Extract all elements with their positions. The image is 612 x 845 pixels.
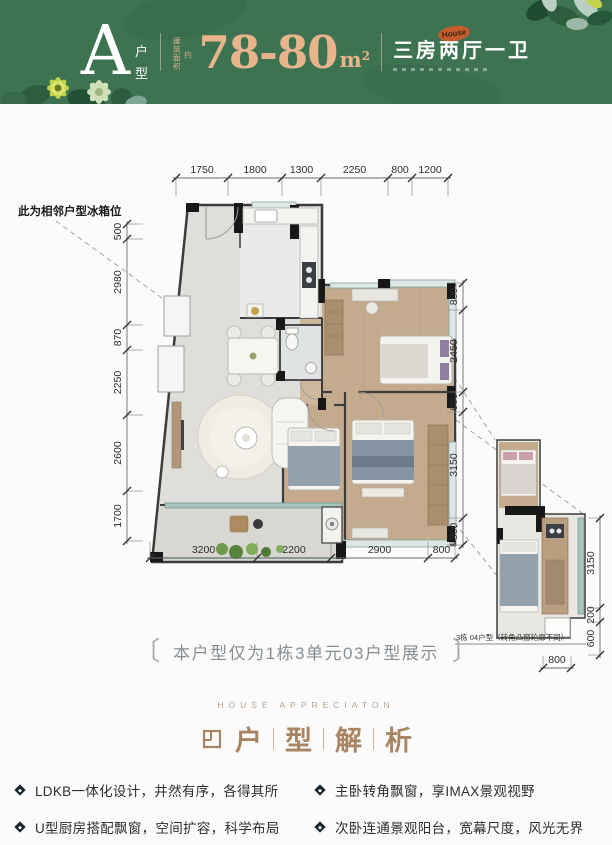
dimension-label: 200 <box>585 606 597 624</box>
section-title-char-1: 户 <box>235 719 262 758</box>
title-divider <box>323 728 324 750</box>
diamond-bullet-icon <box>14 821 25 832</box>
header-banner: A 户 型 建筑面积 约 78-80 m 2 三房两厅一卫 House <box>0 0 612 104</box>
feature-item-balcony: 次卧连通景观阳台，宽幕尺度，风光无界 <box>316 817 600 837</box>
dimension-label: 1300 <box>290 164 314 176</box>
area-exponent: 2 <box>362 49 370 63</box>
feature-item-ldkb: LDKB一体化设计，井然有序，各得其所 <box>16 780 316 800</box>
inset-variant-plan: 3栋 04户型（转角凸窗轮廓不同） <box>455 440 586 644</box>
exterior-bay-2 <box>158 346 184 392</box>
feature-text: 次卧连通景观阳台，宽幕尺度，风光无界 <box>335 817 583 837</box>
feature-text: U型厨房搭配飘窗，空间扩容，科学布局 <box>35 817 280 837</box>
dimension-label: 870 <box>112 329 124 347</box>
house-stamp-text: House <box>441 27 466 39</box>
diamond-bullet-icon <box>14 784 25 795</box>
feature-item-master-window: 主卧转角飘窗，享IMAX景观视野 <box>316 780 600 800</box>
feature-text: LDKB一体化设计，井然有序，各得其所 <box>35 780 278 800</box>
dimension-label: 2450 <box>448 339 460 363</box>
dimension-label: 2980 <box>112 270 124 294</box>
dimension-label: 1700 <box>112 504 124 528</box>
exterior-bay-1 <box>164 296 190 336</box>
dimension-label: 3150 <box>585 551 597 575</box>
fridge-leader-line <box>56 221 162 298</box>
dimension-label: 800 <box>448 523 460 541</box>
feature-text: 主卧转角飘窗，享IMAX景观视野 <box>335 780 535 800</box>
dimension-label: 600 <box>448 393 460 411</box>
area-prefix-text: 建筑面积 <box>172 37 180 71</box>
laundry-closet <box>322 507 342 543</box>
header-divider-2 <box>381 33 382 71</box>
fridge-note-label: 此为相邻户型冰箱位 <box>18 204 122 218</box>
area-prefix: 建筑面积 约 <box>172 37 192 71</box>
note-bracket-right: 〕 <box>452 638 478 664</box>
toilet-tank <box>286 328 298 334</box>
toilet <box>286 334 298 350</box>
area-prefix-approx: 约 <box>183 51 191 71</box>
section-title-char-4: 析 <box>385 719 412 758</box>
dimension-label: 2250 <box>112 371 124 395</box>
dimension-label: 2600 <box>112 441 124 465</box>
diamond-bullet-icon <box>314 821 325 832</box>
header-divider-1 <box>160 33 161 71</box>
unit-label-char-2: 型 <box>135 63 149 82</box>
title-divider <box>273 728 274 750</box>
dimension-label: 800 <box>391 164 409 176</box>
dimension-label: 500 <box>112 223 124 241</box>
section-eyebrow: HOUSE APPRECIATON <box>0 700 612 710</box>
title-divider <box>373 728 374 750</box>
display-note-text: 本户型仅为1栋3单元03户型展示 <box>173 639 439 664</box>
bathroom-sink <box>306 363 317 374</box>
diamond-bullet-icon <box>314 784 325 795</box>
unit-letter: A <box>81 20 130 85</box>
section-title-char-3: 解 <box>335 719 362 758</box>
dimension-label: 800 <box>433 544 451 556</box>
dimension-label: 2250 <box>343 164 367 176</box>
unit-type-label: 户 型 <box>135 41 149 82</box>
dimension-label: 800 <box>448 288 460 306</box>
area-value: 78-80 <box>199 30 338 75</box>
floor-plan: 此为相邻户型冰箱位 <box>0 140 612 700</box>
feature-list: LDKB一体化设计，井然有序，各得其所 主卧转角飘窗，享IMAX景观视野 U型厨… <box>16 780 600 837</box>
main-unit-plan <box>150 202 456 562</box>
dimension-label: 3200 <box>192 544 216 556</box>
dimension-label: 2900 <box>368 544 392 556</box>
layout-subtitle-ticks <box>393 68 489 71</box>
unit-label-char-1: 户 <box>135 41 149 60</box>
dimension-label: 2200 <box>282 544 306 556</box>
dimension-label: 3150 <box>448 453 460 477</box>
feature-item-kitchen: U型厨房搭配飘窗，空间扩容，科学布局 <box>16 817 316 837</box>
floorplan-icon <box>200 727 224 751</box>
dimension-label: 1200 <box>418 164 442 176</box>
poster-page: A 户 型 建筑面积 约 78-80 m 2 三房两厅一卫 House <box>0 0 612 845</box>
note-bracket-left: 〔 <box>134 638 160 664</box>
section-header: HOUSE APPRECIATON 户 型 解 析 <box>0 700 612 758</box>
dimension-label: 1800 <box>243 164 267 176</box>
display-note: 〔 本户型仅为1栋3单元03户型展示 〕 <box>0 638 612 664</box>
section-title-char-2: 型 <box>285 719 312 758</box>
dimension-label: 1750 <box>190 164 214 176</box>
area-unit: m <box>339 47 361 72</box>
